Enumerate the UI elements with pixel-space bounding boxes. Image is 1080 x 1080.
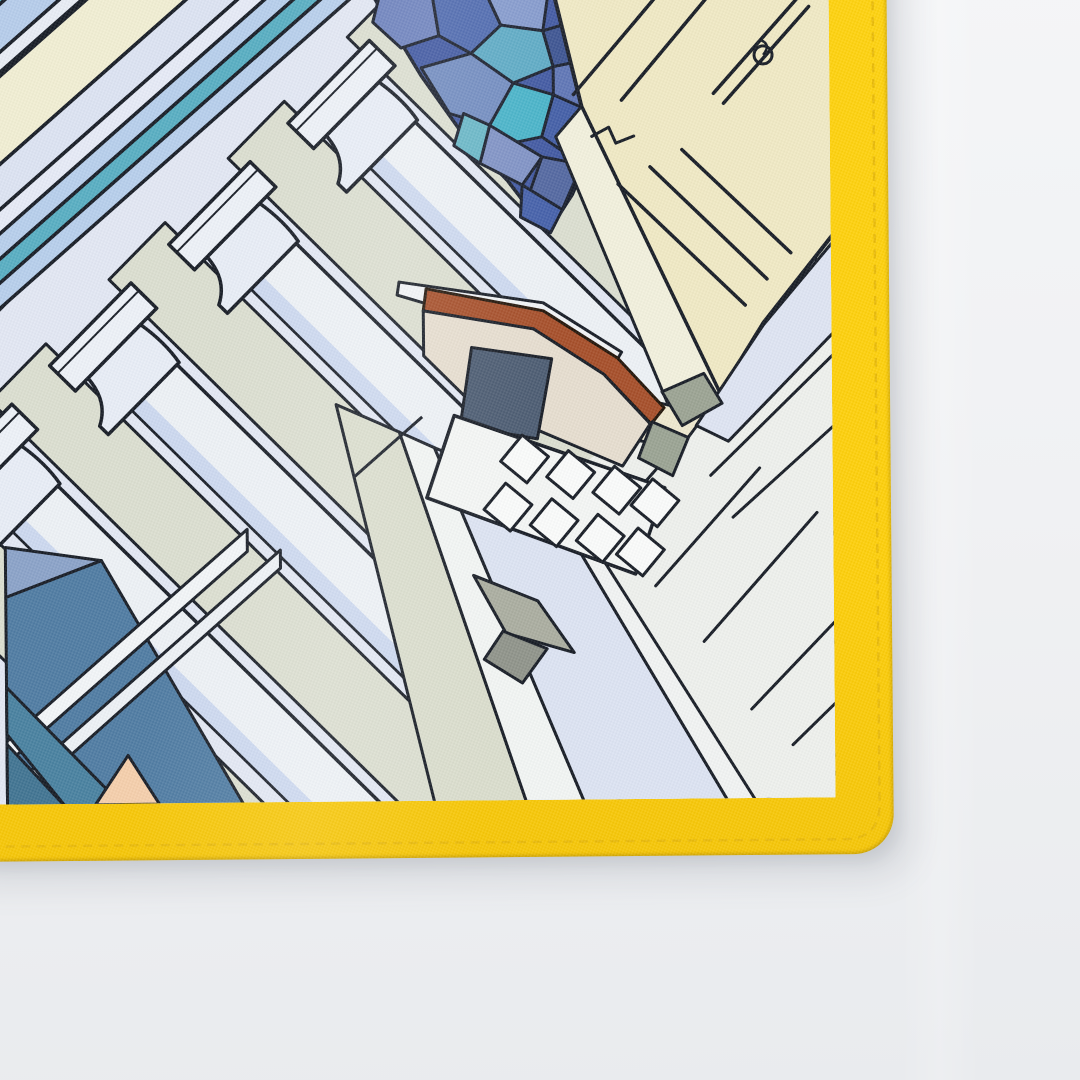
photo-backdrop (0, 0, 1080, 1080)
backdrop-light-band (900, 0, 980, 1080)
hem-stitching (0, 0, 894, 862)
pocket-square (0, 0, 894, 862)
